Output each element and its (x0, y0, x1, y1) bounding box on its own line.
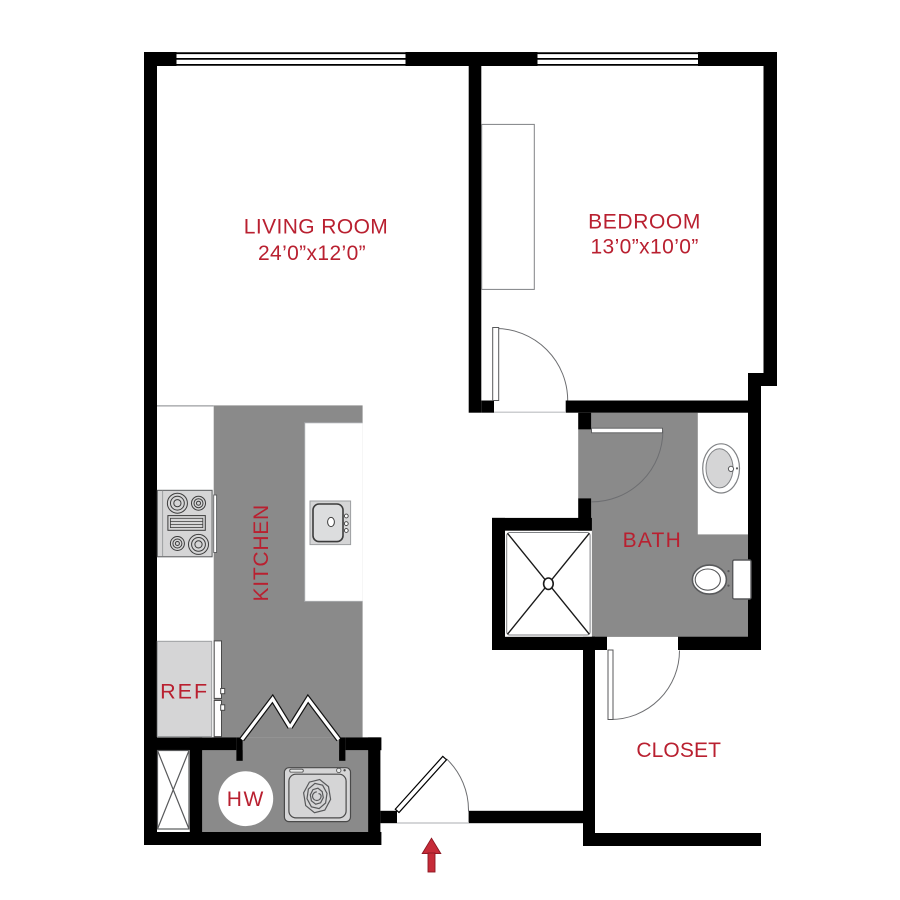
svg-text:13’0”x10’0”: 13’0”x10’0” (590, 235, 698, 258)
svg-text:CLOSET: CLOSET (636, 739, 721, 762)
svg-text:BATH: BATH (623, 529, 682, 552)
svg-text:BEDROOM: BEDROOM (588, 210, 701, 233)
svg-text:24’0”x12’0”: 24’0”x12’0” (258, 242, 366, 265)
svg-text:LIVING ROOM: LIVING ROOM (244, 215, 388, 238)
svg-text:HW: HW (227, 788, 265, 811)
svg-text:KITCHEN: KITCHEN (250, 504, 273, 601)
svg-text:REF: REF (160, 679, 209, 703)
